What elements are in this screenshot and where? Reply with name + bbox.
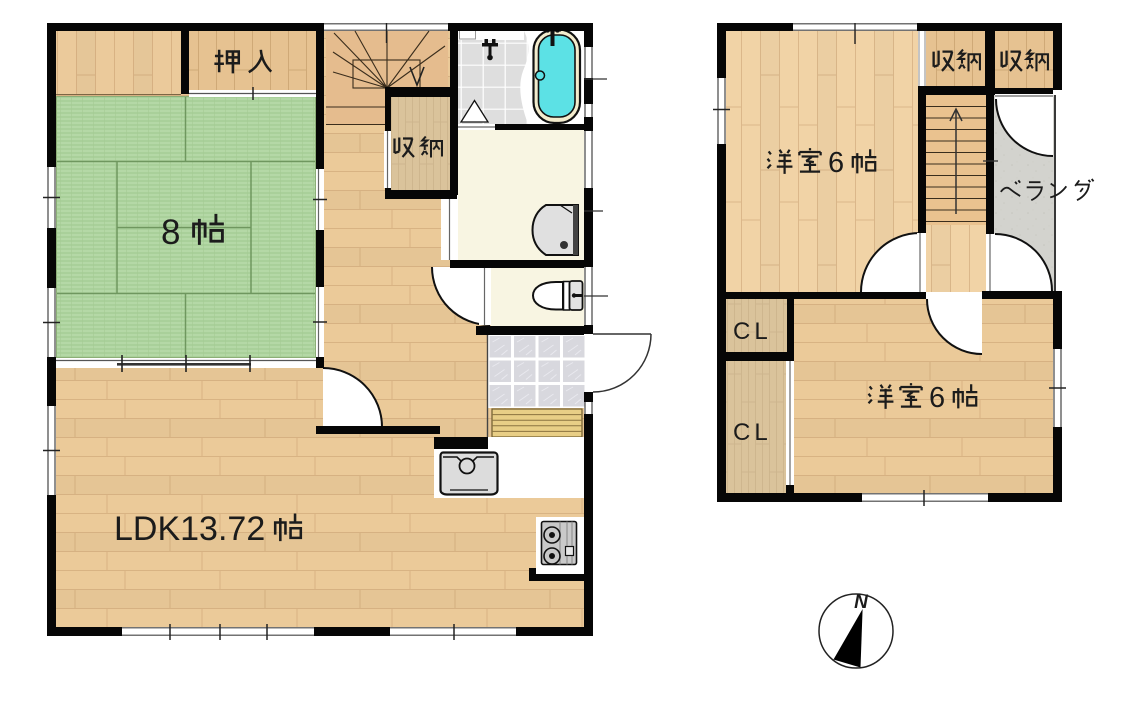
svg-text:N: N [854,592,869,613]
svg-text:LDK13.72: LDK13.72 [114,510,265,548]
svg-text:CL: CL [733,318,772,345]
svg-text:6: 6 [929,382,945,414]
svg-text:8: 8 [161,213,180,252]
svg-text:CL: CL [733,419,772,446]
svg-text:6: 6 [828,147,844,179]
